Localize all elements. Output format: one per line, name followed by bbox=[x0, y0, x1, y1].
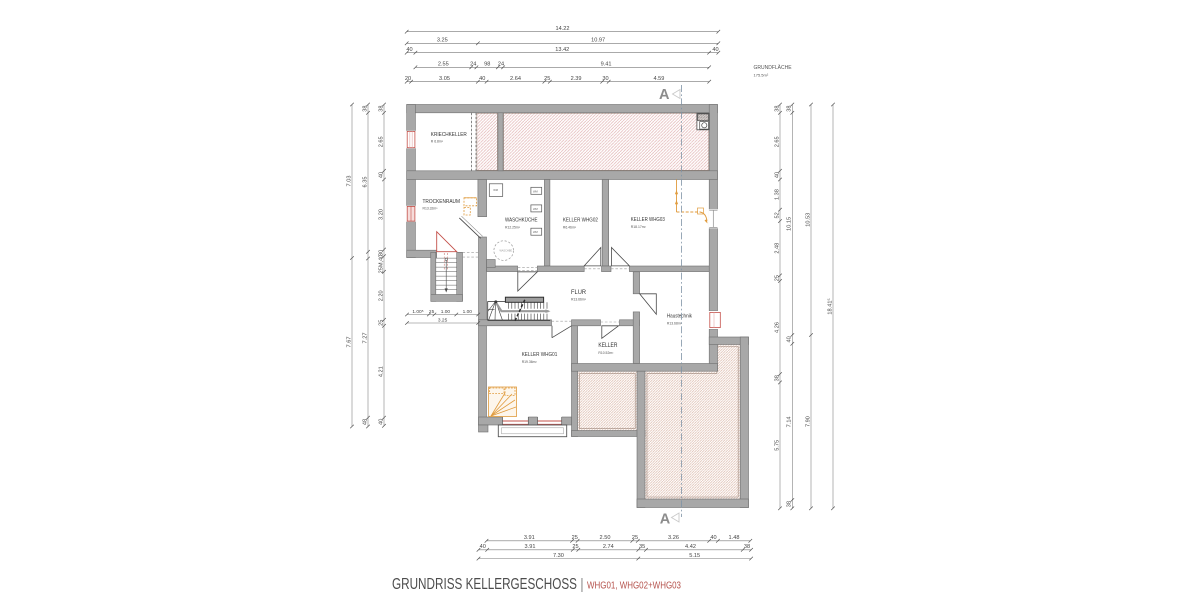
svg-text:25M,40: 25M,40 bbox=[378, 255, 384, 274]
svg-text:R19.36m²: R19.36m² bbox=[522, 360, 538, 364]
svg-text:2.74: 2.74 bbox=[603, 544, 614, 550]
svg-text:25: 25 bbox=[632, 535, 638, 541]
svg-text:5.75: 5.75 bbox=[774, 440, 780, 451]
svg-text:48: 48 bbox=[362, 419, 368, 425]
svg-text:175.5m²: 175.5m² bbox=[754, 73, 769, 78]
svg-text:2.48: 2.48 bbox=[774, 243, 780, 254]
svg-text:38: 38 bbox=[774, 105, 780, 111]
svg-text:WM: WM bbox=[493, 188, 499, 192]
svg-text:25: 25 bbox=[378, 320, 384, 326]
svg-text:2.50: 2.50 bbox=[600, 535, 611, 541]
svg-text:R13.66m²: R13.66m² bbox=[571, 298, 587, 302]
svg-text:WASCHKÜCHE: WASCHKÜCHE bbox=[505, 217, 538, 224]
svg-text:38: 38 bbox=[787, 105, 793, 111]
svg-text:5.15: 5.15 bbox=[689, 553, 700, 559]
svg-text:R6.46m²: R6.46m² bbox=[563, 226, 577, 230]
svg-text:2.64: 2.64 bbox=[510, 76, 521, 82]
svg-text:3.25: 3.25 bbox=[437, 38, 448, 44]
svg-text:R12.25m²: R12.25m² bbox=[505, 226, 521, 230]
svg-text:40: 40 bbox=[774, 172, 780, 178]
svg-text:1.00⁵: 1.00⁵ bbox=[412, 309, 423, 315]
svg-text:A: A bbox=[660, 512, 671, 528]
svg-text:40: 40 bbox=[480, 544, 486, 550]
svg-text:38: 38 bbox=[774, 375, 780, 381]
svg-text:52: 52 bbox=[774, 212, 780, 218]
svg-text:6.35: 6.35 bbox=[362, 177, 368, 188]
svg-text:35: 35 bbox=[639, 544, 645, 550]
svg-text:7.14: 7.14 bbox=[787, 416, 793, 427]
svg-text:40: 40 bbox=[479, 76, 485, 82]
svg-text:38: 38 bbox=[378, 105, 384, 111]
svg-text:R13.32m²: R13.32m² bbox=[423, 207, 439, 211]
svg-text:4.42: 4.42 bbox=[685, 544, 696, 550]
svg-text:10.53: 10.53 bbox=[805, 213, 811, 227]
svg-text:TROCKENRAUM: TROCKENRAUM bbox=[423, 199, 461, 205]
svg-text:GRUNDRISS KELLERGESCHOSS: GRUNDRISS KELLERGESCHOSS bbox=[392, 576, 577, 593]
svg-text:R10.52m²: R10.52m² bbox=[598, 351, 614, 355]
svg-text:38: 38 bbox=[744, 544, 750, 550]
svg-text:20: 20 bbox=[405, 76, 411, 82]
svg-text:WHG01, WHG02+WHG03: WHG01, WHG02+WHG03 bbox=[587, 580, 681, 592]
svg-text:7.03: 7.03 bbox=[346, 176, 352, 187]
svg-text:7.67: 7.67 bbox=[346, 337, 352, 348]
svg-text:40: 40 bbox=[710, 535, 716, 541]
svg-text:3.91: 3.91 bbox=[524, 535, 535, 541]
svg-text:WASCHBE.: WASCHBE. bbox=[500, 250, 514, 253]
svg-text:1.00: 1.00 bbox=[463, 309, 473, 315]
svg-text:18.41⁵: 18.41⁵ bbox=[826, 298, 833, 314]
svg-text:1.00: 1.00 bbox=[441, 309, 451, 315]
svg-text:WM: WM bbox=[533, 230, 539, 234]
svg-text:A: A bbox=[659, 87, 670, 103]
svg-text:WM: WM bbox=[533, 207, 539, 211]
svg-text:2.55: 2.55 bbox=[438, 62, 449, 68]
svg-text:24: 24 bbox=[470, 62, 476, 68]
svg-text:25: 25 bbox=[544, 76, 550, 82]
svg-text:1.38: 1.38 bbox=[774, 189, 780, 200]
svg-text:24: 24 bbox=[498, 62, 504, 68]
svg-text:2.39: 2.39 bbox=[571, 76, 582, 82]
svg-text:3.91: 3.91 bbox=[525, 544, 536, 550]
svg-text:R 6.8m²: R 6.8m² bbox=[431, 140, 444, 144]
svg-text:R13.68m²: R13.68m² bbox=[667, 322, 683, 326]
svg-text:KELLER: KELLER bbox=[598, 343, 618, 349]
svg-text:38: 38 bbox=[362, 105, 368, 111]
svg-text:1.48: 1.48 bbox=[729, 535, 740, 541]
svg-text:40: 40 bbox=[787, 336, 793, 342]
svg-text:KELLER WHG03: KELLER WHG03 bbox=[631, 217, 665, 223]
svg-text:40: 40 bbox=[378, 172, 384, 178]
svg-text:2.20: 2.20 bbox=[378, 290, 384, 301]
svg-text:38: 38 bbox=[787, 501, 793, 507]
svg-text:2.65: 2.65 bbox=[774, 136, 780, 147]
svg-text:25: 25 bbox=[572, 544, 578, 550]
svg-text:FLUR: FLUR bbox=[571, 290, 587, 296]
svg-text:4.59: 4.59 bbox=[653, 76, 664, 82]
svg-text:3.20: 3.20 bbox=[378, 209, 384, 220]
svg-text:25: 25 bbox=[774, 275, 780, 281]
svg-text:98: 98 bbox=[484, 62, 490, 68]
svg-text:7.27: 7.27 bbox=[362, 333, 368, 344]
svg-text:3.25: 3.25 bbox=[438, 317, 448, 323]
svg-text:10.97: 10.97 bbox=[591, 38, 605, 44]
svg-text:KRIECHKELLER: KRIECHKELLER bbox=[431, 132, 467, 138]
svg-text:40: 40 bbox=[378, 419, 384, 425]
svg-text:25: 25 bbox=[429, 309, 435, 315]
svg-text:4.21: 4.21 bbox=[378, 366, 384, 377]
svg-text:30: 30 bbox=[602, 76, 608, 82]
svg-text:10.15: 10.15 bbox=[787, 217, 793, 231]
svg-text:KELLER WHG02: KELLER WHG02 bbox=[563, 218, 598, 224]
svg-text:9.41: 9.41 bbox=[601, 62, 612, 68]
svg-text:7.30: 7.30 bbox=[553, 553, 564, 559]
svg-text:2.65: 2.65 bbox=[378, 136, 384, 147]
svg-text:25: 25 bbox=[572, 535, 578, 541]
svg-text:4.26: 4.26 bbox=[774, 322, 780, 333]
svg-text:KELLER WHG01: KELLER WHG01 bbox=[522, 352, 558, 358]
svg-text:Haustechnik: Haustechnik bbox=[667, 314, 692, 320]
svg-text:|: | bbox=[580, 576, 584, 593]
svg-text:R18.17m²: R18.17m² bbox=[631, 225, 647, 229]
svg-text:40: 40 bbox=[712, 47, 718, 53]
svg-text:7.90: 7.90 bbox=[805, 416, 811, 427]
svg-text:40: 40 bbox=[406, 47, 412, 53]
svg-text:3.05: 3.05 bbox=[439, 76, 450, 82]
svg-text:GRUNDFLÄCHE: GRUNDFLÄCHE bbox=[754, 64, 793, 71]
svg-text:3.26: 3.26 bbox=[668, 535, 679, 541]
svg-text:14.22: 14.22 bbox=[556, 26, 570, 32]
svg-text:13.42: 13.42 bbox=[555, 47, 569, 53]
svg-text:WM: WM bbox=[533, 189, 539, 193]
